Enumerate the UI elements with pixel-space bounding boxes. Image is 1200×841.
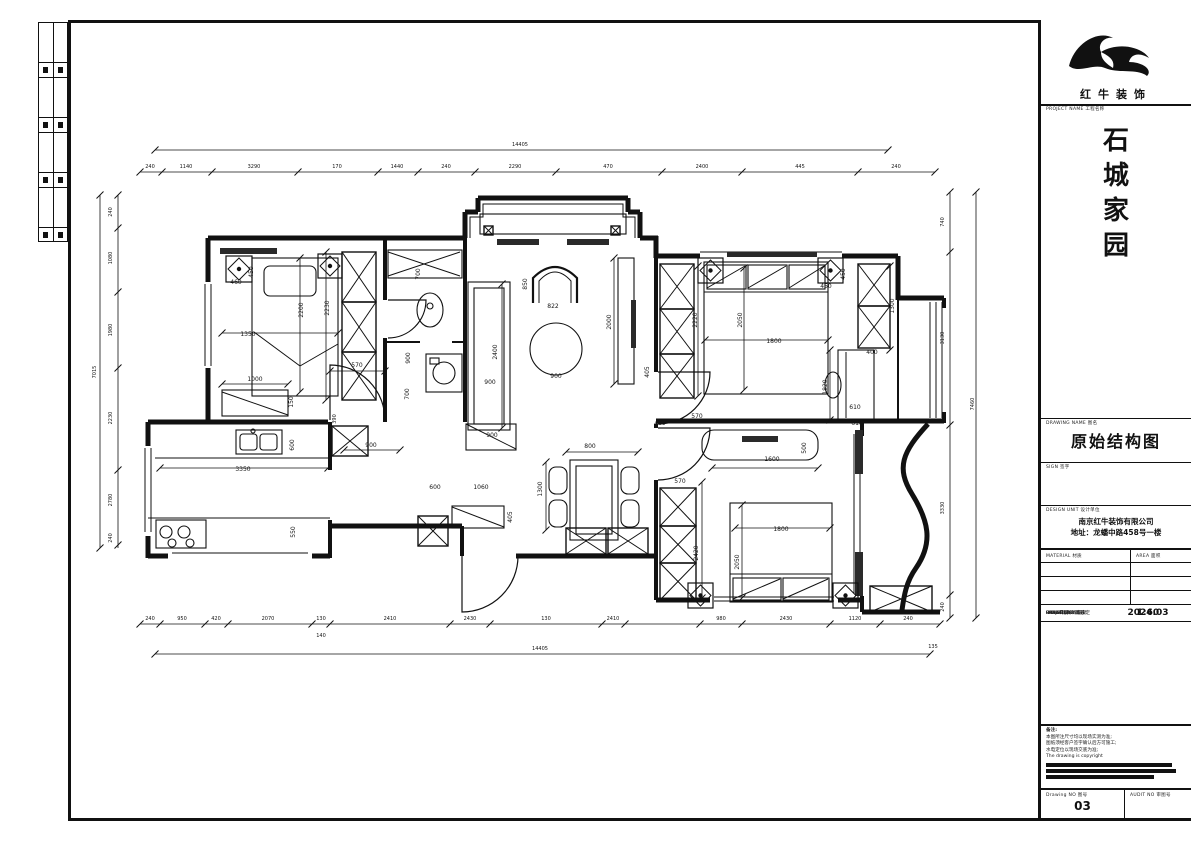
nightstand-icon [328, 264, 332, 268]
drawing-no: 03 [1041, 799, 1124, 813]
dim-label: 2400 [696, 164, 709, 170]
dim-label: 400 [654, 420, 666, 427]
dim-label: 240 [145, 164, 155, 170]
hatch-band [855, 552, 863, 596]
dim-label: 1000 [247, 376, 262, 383]
dim-label: 570 [691, 413, 703, 420]
dim-label: 3330 [940, 502, 946, 515]
dim-label: 2230 [108, 412, 114, 425]
dim-label: 950 [177, 616, 187, 622]
fixture-circle [433, 362, 455, 384]
dim-label: 900 [405, 352, 412, 364]
hatch-band [567, 239, 609, 245]
grid-header-row: MATERIAL 材质 AREA 面积 [1041, 550, 1191, 563]
dim-label: 2050 [734, 554, 741, 569]
dim-label: 240 [108, 533, 114, 543]
window-mask [168, 551, 312, 560]
dim-label: 1820 [822, 379, 829, 394]
dim-label: 2200 [298, 302, 305, 317]
furniture [240, 434, 257, 450]
dim-label: 2070 [262, 616, 275, 622]
divider [1041, 462, 1191, 463]
dim-label: 130 [316, 616, 326, 622]
title-block: 红牛装饰 PROJECT NAME 工程名称 石 城 家 园 DRAWING N… [1038, 20, 1191, 818]
bull-logo-icon [1055, 26, 1175, 84]
dim-label: 150 [288, 396, 295, 408]
grid-row [1041, 577, 1191, 591]
dim-label: 7460 [970, 398, 976, 411]
hatch-band [855, 430, 863, 474]
note-line: The drawing is copyright [1046, 754, 1184, 761]
dim-label: 610 [851, 420, 863, 427]
dim-label: 500 [801, 442, 808, 454]
dim-label: 2430 [780, 616, 793, 622]
brand-name: 红牛装饰 [1041, 86, 1191, 102]
plan-line [748, 266, 786, 288]
dim-label: 240 [108, 207, 114, 217]
dim-label: 600 [429, 484, 441, 491]
dim-label: 610 [849, 404, 861, 411]
notes-block: 备注: 本图所注尺寸均以现场实测为准;图纸须经客户签字确认后方可施工;水电定位以… [1046, 728, 1184, 781]
furniture [474, 288, 504, 424]
plan-path [388, 300, 426, 338]
furniture [252, 258, 338, 396]
company-name: 南京红牛装饰有限公司 [1041, 516, 1191, 527]
divider [1041, 505, 1191, 506]
design-unit-label: DESIGN UNIT 设计单位 [1046, 507, 1100, 513]
project-name-label: PROJECT NAME 工程名称 [1046, 106, 1105, 112]
dim-label: 700 [404, 388, 411, 400]
dim-label: 822 [547, 303, 559, 310]
dim-label: 420 [211, 616, 221, 622]
dim-label: 3350 [235, 466, 250, 473]
dim-label: 1440 [391, 164, 404, 170]
dim-label: 240 [891, 164, 901, 170]
dim-label: 2780 [108, 494, 114, 507]
plan-line [789, 266, 824, 288]
dim-label: 2290 [509, 164, 522, 170]
dim-label: 450 [248, 266, 255, 278]
dim-label: 445 [795, 164, 805, 170]
dim-label: 1300 [537, 481, 544, 496]
dim-label: 2430 [464, 616, 477, 622]
plan-line [300, 344, 338, 366]
dim-label: 3130 [940, 332, 946, 345]
drawing-sheet: 4504601350220022301000150570700900700240… [0, 0, 1200, 841]
drawing-number-row: Drawing NO 图号 03 AUDIT NO 审图号 [1041, 788, 1191, 820]
dim-label: 1350 [240, 331, 255, 338]
dim-label: 405 [507, 511, 514, 523]
dim-label: 740 [940, 217, 946, 227]
furniture [426, 354, 462, 392]
furniture [430, 358, 439, 364]
fixture-circle [530, 323, 582, 375]
dim-label: 390 [332, 414, 338, 424]
plan-path [658, 428, 710, 480]
dim-label: 240 [145, 616, 155, 622]
dim-label: 900 [486, 432, 498, 439]
dim-label: 2000 [606, 314, 613, 329]
furniture [549, 467, 567, 494]
sign-label: SIGN 签字 [1046, 464, 1070, 470]
dim-label: 450 [820, 283, 832, 290]
plan-path [470, 204, 635, 238]
dim-label: 1600 [764, 456, 779, 463]
dim-label: 570 [674, 478, 686, 485]
dim-label: 1300 [889, 298, 896, 313]
dim-label: 2220 [692, 312, 699, 327]
hatch-band [497, 239, 539, 245]
row-value: 1:60 [1113, 608, 1183, 618]
grid-row [1041, 591, 1191, 605]
note-redaction [1046, 769, 1176, 773]
dim-label: 140 [316, 633, 326, 639]
dim-label: 2400 [492, 344, 499, 359]
plan-line [254, 332, 300, 366]
nightstand-icon [843, 593, 847, 597]
hatch-band [220, 248, 277, 254]
dim-label: 900 [484, 379, 496, 386]
dim-label: 1120 [849, 616, 862, 622]
plan-path [902, 424, 928, 610]
hatch-band [631, 300, 636, 348]
furniture [576, 466, 612, 534]
drawing-name-label: DRAWING NAME 图名 [1046, 420, 1097, 426]
dim-label: 240 [903, 616, 913, 622]
titleblock-row: SCALE 比例1:60 [1041, 605, 1191, 622]
fixture-circle [427, 303, 433, 309]
dim-label: 1080 [108, 252, 114, 265]
dim-label: 900 [365, 442, 377, 449]
divider [1041, 418, 1191, 419]
dim-label: 2230 [324, 300, 331, 315]
window-mask [142, 446, 154, 536]
furniture [156, 520, 206, 548]
company-info: 南京红牛装饰有限公司 地址：龙蟠中路458号一楼 [1041, 516, 1191, 538]
dim-label: 850 [522, 278, 529, 290]
floor-plan: 4504601350220022301000150570700900700240… [0, 0, 1200, 841]
dim-label: 1060 [473, 484, 488, 491]
dim-label: 460 [230, 279, 242, 286]
nightstand-icon [237, 267, 241, 271]
dim-label: 170 [332, 164, 342, 170]
plan-path [462, 556, 518, 612]
nightstand-icon [708, 268, 712, 272]
drawing-no-label: Drawing NO 图号 [1046, 792, 1087, 798]
drawing-name: 原始结构图 [1041, 428, 1191, 452]
dim-label: 14405 [532, 646, 548, 652]
dim-label: 450 [840, 268, 847, 280]
furniture [549, 500, 567, 527]
dim-label: 700 [415, 268, 422, 280]
fixture-ellipse [417, 293, 443, 327]
dim-label: 400 [866, 349, 878, 356]
dim-label: 570 [351, 362, 363, 369]
furniture [621, 500, 639, 527]
dim-label: 470 [603, 164, 613, 170]
company-address: 地址：龙蟠中路458号一楼 [1041, 527, 1191, 538]
fixture-circle [178, 526, 190, 538]
fixture-circle [160, 526, 172, 538]
dim-label: 2410 [607, 616, 620, 622]
dim-label: 7015 [92, 366, 98, 379]
dim-label: 600 [289, 439, 296, 451]
dim-label: 240 [940, 602, 946, 612]
dim-label: 2420 [693, 545, 700, 560]
grid-right-label: AREA 面积 [1136, 553, 1161, 559]
fixture-circle [168, 539, 176, 547]
dim-label: 1800 [766, 338, 781, 345]
furniture [621, 467, 639, 494]
note-redaction [1046, 775, 1154, 779]
project-name: 石 城 家 园 [1041, 124, 1191, 264]
dim-label: 405 [644, 366, 651, 378]
dim-label: 2410 [384, 616, 397, 622]
dim-label: 240 [441, 164, 451, 170]
audit-no-label: AUDIT NO 审图号 [1130, 792, 1171, 798]
dim-label: 130 [541, 616, 551, 622]
grid-left-label: MATERIAL 材质 [1046, 553, 1082, 559]
plan-path [539, 272, 571, 303]
plan-line [707, 266, 745, 288]
dim-label: 1980 [108, 324, 114, 337]
furniture [480, 214, 626, 234]
fixture-circle [186, 539, 194, 547]
dim-label: 800 [584, 443, 596, 450]
furniture [264, 266, 316, 296]
dim-label: 14405 [512, 142, 528, 148]
note-redaction [1046, 763, 1172, 767]
window-mask [202, 282, 214, 368]
dim-label: 980 [716, 616, 726, 622]
row-label: SCALE 比例 [1046, 610, 1071, 616]
dim-label: 550 [290, 526, 297, 538]
dim-label: 900 [550, 373, 562, 380]
note-lines: 本图所注尺寸均以现场实测为准;图纸须经客户签字确认后方可施工;水电定位以现场交底… [1046, 735, 1184, 761]
dim-label: 1800 [773, 526, 788, 533]
divider [1041, 724, 1191, 726]
dim-label: 3290 [248, 164, 261, 170]
furniture [260, 434, 277, 450]
dim-label: 1140 [180, 164, 193, 170]
grid-row [1041, 563, 1191, 577]
hatch-band [727, 252, 817, 257]
dim-label: 2050 [737, 312, 744, 327]
hatch-band [742, 436, 778, 442]
dim-label: 135 [928, 644, 938, 650]
nightstand-icon [828, 268, 832, 272]
